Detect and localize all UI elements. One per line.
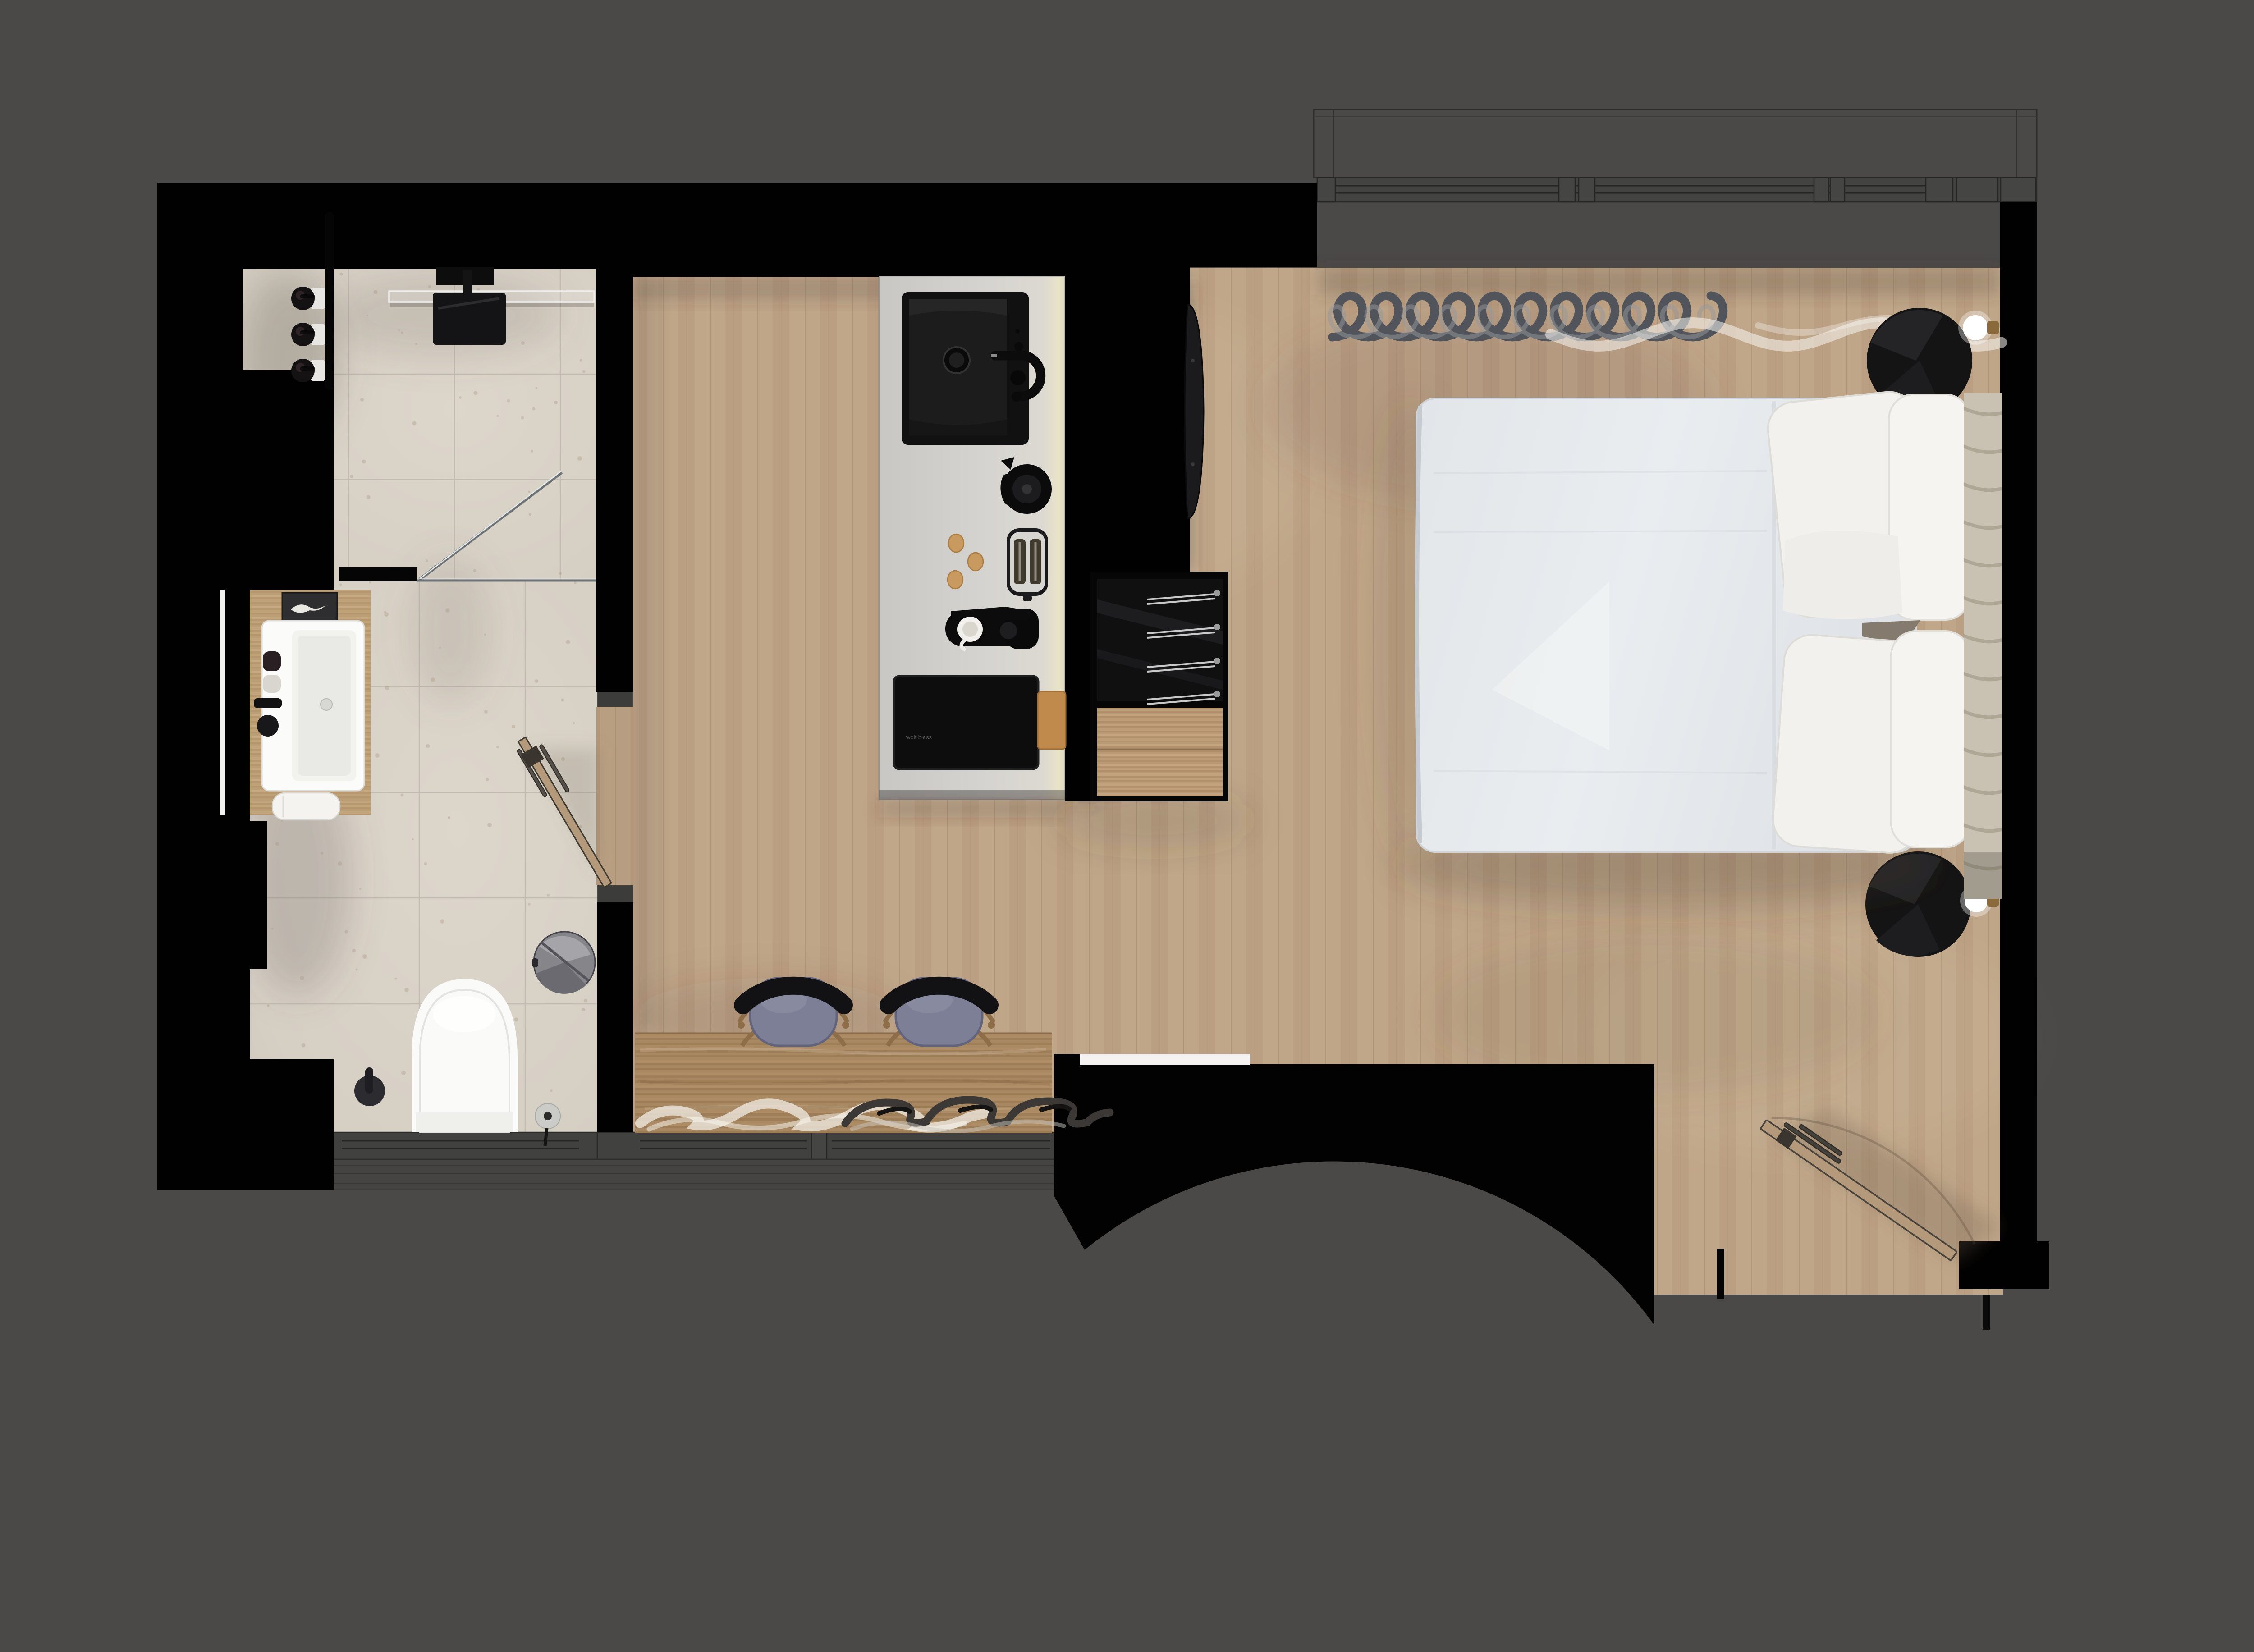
- svg-text:wolf blass: wolf blass: [906, 734, 932, 741]
